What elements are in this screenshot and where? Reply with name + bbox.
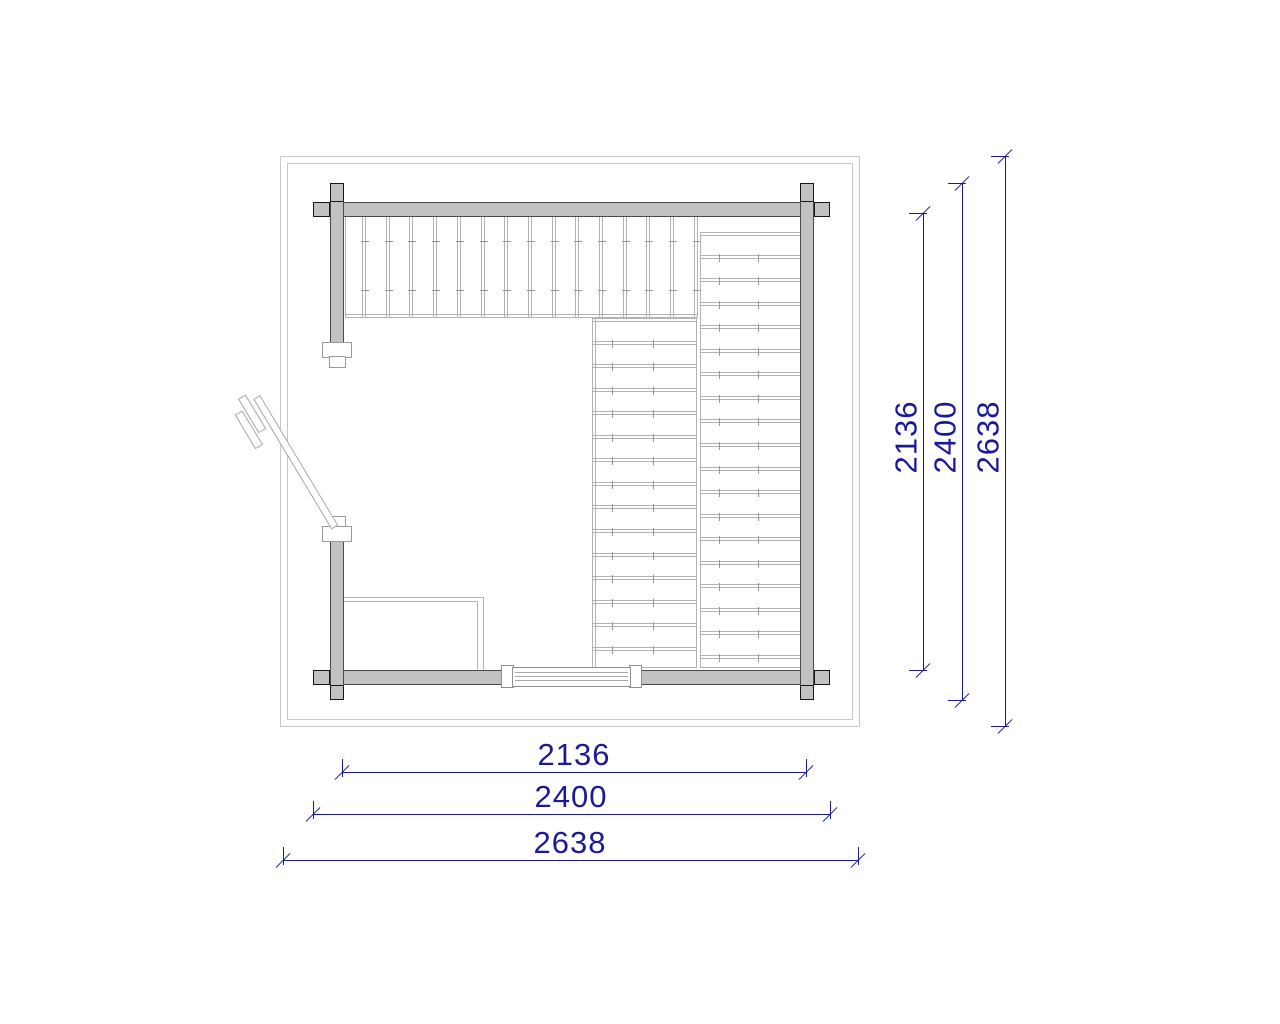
board-divider: [593, 647, 696, 651]
dim-label: 2400: [521, 783, 621, 811]
log-end-bottom-right-horizontal: [814, 670, 830, 685]
dim-line: [313, 814, 830, 815]
dim-tick: [948, 700, 966, 701]
board-divider: [593, 388, 696, 392]
dim-label: 2400: [930, 377, 960, 497]
board-tick: [612, 599, 613, 607]
board-tick: [612, 434, 613, 442]
board-tick: [612, 504, 613, 512]
board-divider: [593, 411, 696, 415]
bench-slat-divider: [599, 217, 603, 317]
window-pane-line: [515, 680, 628, 681]
slat-tick: [503, 241, 511, 242]
board-tick: [653, 552, 654, 560]
board-tick: [758, 418, 759, 426]
board-tick: [653, 599, 654, 607]
dim-label: 2136: [891, 377, 921, 497]
board-tick: [653, 410, 654, 418]
slat-tick: [361, 290, 369, 291]
board-tick: [719, 607, 720, 615]
board-tick: [758, 583, 759, 591]
board-divider: [701, 584, 800, 588]
board-tick: [719, 583, 720, 591]
dim-tick: [858, 847, 859, 865]
board-tick: [758, 489, 759, 497]
slat-tick: [456, 290, 464, 291]
board-divider: [593, 623, 696, 627]
board-divider: [701, 278, 800, 282]
slat-tick: [645, 241, 653, 242]
board-tick: [758, 536, 759, 544]
bench-slat-divider: [670, 217, 674, 317]
bench-edge-line: [346, 314, 697, 315]
board-divider: [593, 600, 696, 604]
slat-tick: [551, 241, 559, 242]
board-tick: [719, 371, 720, 379]
board-divider: [701, 537, 800, 541]
slat-tick: [385, 241, 393, 242]
slat-tick: [645, 290, 653, 291]
dim-tick: [909, 670, 927, 671]
slat-tick: [408, 241, 416, 242]
board-tick: [612, 646, 613, 654]
door-frame-upper-notch: [329, 356, 346, 368]
corner-table-inner-line: [344, 601, 478, 671]
board-tick: [758, 277, 759, 285]
board-divider: [593, 482, 696, 486]
corner-table: [344, 597, 484, 670]
window: [512, 667, 631, 687]
bench-slat-divider: [694, 217, 698, 317]
board-tick: [653, 363, 654, 371]
board-tick: [612, 622, 613, 630]
dim-tick: [909, 213, 927, 214]
board-tick: [758, 513, 759, 521]
board-tick: [653, 340, 654, 348]
dim-label: 2638: [520, 829, 620, 857]
deck-edge-line: [593, 321, 696, 322]
board-tick: [719, 536, 720, 544]
slat-tick: [574, 241, 582, 242]
dim-line: [283, 860, 858, 861]
slat-tick: [480, 241, 488, 242]
slat-tick: [551, 290, 559, 291]
log-end-bottom-left-vertical: [330, 685, 344, 700]
wall-left-lower: [330, 532, 344, 700]
board-tick: [758, 324, 759, 332]
board-divider: [701, 467, 800, 471]
board-divider: [593, 458, 696, 462]
board-tick: [758, 466, 759, 474]
slat-tick: [432, 241, 440, 242]
board-tick: [653, 434, 654, 442]
slat-tick: [480, 290, 488, 291]
deck-edge-line: [595, 319, 596, 667]
bench-slat-divider: [552, 217, 556, 317]
board-divider: [593, 364, 696, 368]
board-tick: [719, 395, 720, 403]
board-tick: [719, 489, 720, 497]
board-divider: [701, 443, 800, 447]
board-divider: [701, 655, 800, 659]
board-divider: [701, 419, 800, 423]
board-tick: [612, 410, 613, 418]
board-tick: [719, 324, 720, 332]
wall-left-upper: [330, 183, 344, 350]
bench-slat-divider: [504, 217, 508, 317]
log-end-bottom-right-vertical: [800, 685, 814, 700]
slat-tick: [574, 290, 582, 291]
board-tick: [758, 442, 759, 450]
slat-tick: [361, 241, 369, 242]
board-tick: [653, 646, 654, 654]
board-tick: [719, 277, 720, 285]
board-tick: [758, 654, 759, 662]
board-tick: [719, 301, 720, 309]
board-tick: [653, 504, 654, 512]
board-divider: [701, 631, 800, 635]
board-divider: [701, 325, 800, 329]
board-tick: [612, 575, 613, 583]
board-tick: [719, 560, 720, 568]
board-tick: [653, 528, 654, 536]
board-tick: [719, 442, 720, 450]
board-tick: [719, 254, 720, 262]
bench-slat-divider: [433, 217, 437, 317]
board-tick: [612, 481, 613, 489]
bench-slat-divider: [386, 217, 390, 317]
board-tick: [612, 528, 613, 536]
board-tick: [719, 348, 720, 356]
dim-tick: [991, 726, 1009, 727]
dim-label: 2136: [524, 741, 624, 769]
board-tick: [612, 457, 613, 465]
slat-tick: [669, 290, 677, 291]
board-tick: [719, 513, 720, 521]
bench-slat-divider: [646, 217, 650, 317]
board-divider: [593, 576, 696, 580]
slat-tick: [408, 290, 416, 291]
board-tick: [653, 481, 654, 489]
board-tick: [719, 418, 720, 426]
board-tick: [719, 654, 720, 662]
board-divider: [701, 372, 800, 376]
dim-label: 2638: [973, 377, 1003, 497]
board-divider: [701, 561, 800, 565]
board-tick: [758, 348, 759, 356]
board-divider: [593, 341, 696, 345]
board-divider: [701, 396, 800, 400]
board-tick: [758, 630, 759, 638]
board-divider: [593, 435, 696, 439]
board-tick: [653, 575, 654, 583]
board-tick: [719, 466, 720, 474]
board-divider: [593, 553, 696, 557]
board-tick: [758, 560, 759, 568]
board-tick: [612, 340, 613, 348]
dim-tick: [313, 801, 314, 819]
dim-line: [342, 772, 806, 773]
dim-tick: [806, 759, 807, 777]
bench-slat-divider: [457, 217, 461, 317]
slat-tick: [622, 290, 630, 291]
slat-tick: [385, 290, 393, 291]
top-bench-slats: [345, 217, 698, 318]
dim-tick: [948, 183, 966, 184]
log-end-top-right-vertical: [800, 183, 814, 202]
slat-tick: [669, 241, 677, 242]
slat-tick: [598, 290, 606, 291]
dim-tick: [283, 847, 284, 865]
log-end-top-left-vertical: [330, 183, 344, 202]
bench-slat-divider: [528, 217, 532, 317]
board-tick: [758, 395, 759, 403]
middle-deck-boards: [592, 318, 697, 668]
board-tick: [653, 387, 654, 395]
dim-tick: [342, 759, 343, 777]
board-tick: [758, 371, 759, 379]
door-frame-lower: [322, 526, 352, 542]
slat-tick: [456, 241, 464, 242]
log-end-top-left-horizontal: [313, 202, 330, 217]
bench-slat-divider: [409, 217, 413, 317]
board-divider: [701, 255, 800, 259]
bench-slat-divider: [481, 217, 485, 317]
board-tick: [612, 387, 613, 395]
slat-tick: [527, 241, 535, 242]
board-tick: [719, 630, 720, 638]
board-divider: [701, 302, 800, 306]
window-pane-line: [515, 672, 628, 673]
slat-tick: [598, 241, 606, 242]
window-pane-line: [515, 676, 628, 677]
board-tick: [758, 254, 759, 262]
wall-top: [313, 202, 830, 217]
board-divider: [593, 505, 696, 509]
board-divider: [701, 490, 800, 494]
wall-right: [800, 183, 814, 700]
board-tick: [653, 622, 654, 630]
board-divider: [701, 514, 800, 518]
bench-edge-line: [701, 235, 800, 236]
slat-tick: [432, 290, 440, 291]
log-end-bottom-left-horizontal: [313, 670, 330, 685]
log-end-top-right-horizontal: [814, 202, 830, 217]
slat-tick: [503, 290, 511, 291]
dim-tick: [830, 801, 831, 819]
board-tick: [612, 552, 613, 560]
board-tick: [653, 457, 654, 465]
right-bench-boards: [700, 232, 800, 668]
bench-slat-divider: [623, 217, 627, 317]
slat-tick: [527, 290, 535, 291]
bench-slat-divider: [575, 217, 579, 317]
board-divider: [701, 608, 800, 612]
bench-slat-divider: [362, 217, 366, 317]
board-tick: [758, 301, 759, 309]
board-divider: [701, 349, 800, 353]
floor-plan-canvas: 2136 2400 2638 2136 2400: [0, 0, 1280, 1024]
slat-tick: [622, 241, 630, 242]
board-tick: [612, 363, 613, 371]
board-divider: [593, 529, 696, 533]
board-tick: [758, 607, 759, 615]
dim-tick: [991, 156, 1009, 157]
